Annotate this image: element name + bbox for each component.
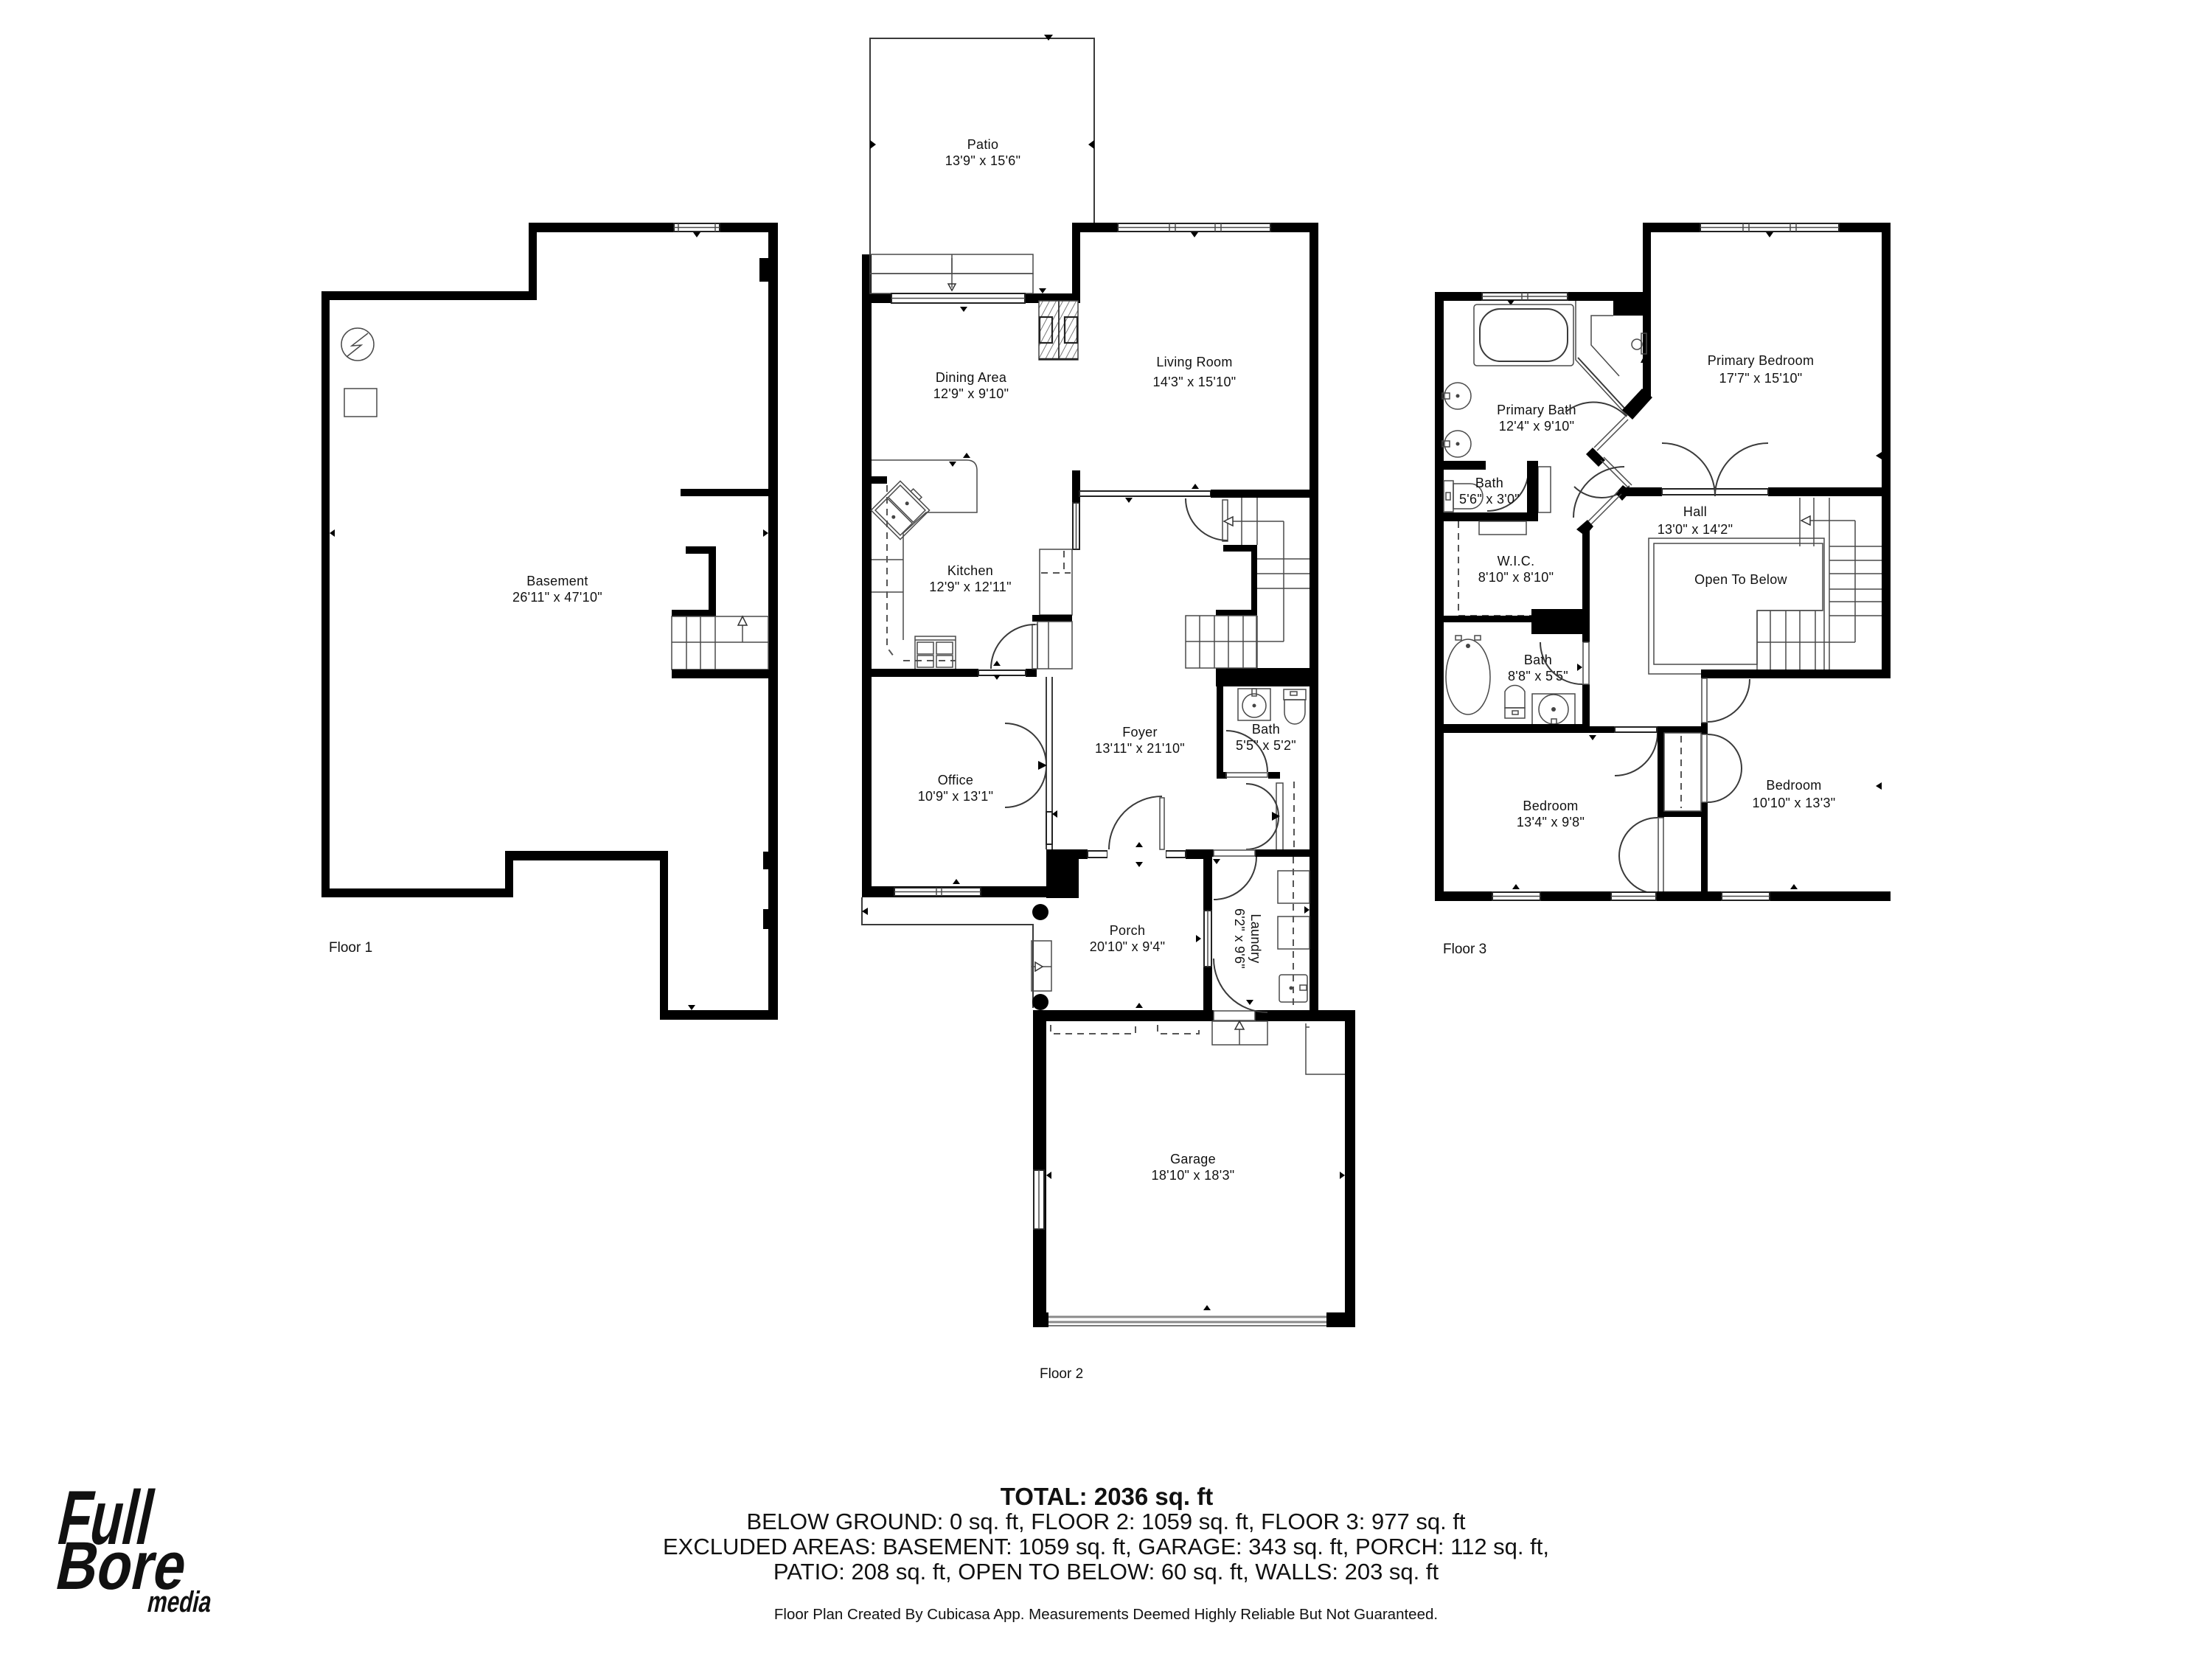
svg-text:Floor 3: Floor 3 bbox=[1443, 942, 1486, 957]
svg-text:20'10" x 9'4": 20'10" x 9'4" bbox=[1090, 939, 1166, 954]
svg-text:5'5" x 5'2": 5'5" x 5'2" bbox=[1236, 738, 1296, 753]
svg-text:Foyer: Foyer bbox=[1122, 725, 1158, 740]
svg-text:TOTAL: 2036 sq. ft: TOTAL: 2036 sq. ft bbox=[1001, 1483, 1214, 1510]
svg-text:Laundry: Laundry bbox=[1248, 914, 1263, 963]
svg-text:12'9" x 9'10": 12'9" x 9'10" bbox=[933, 386, 1009, 401]
svg-text:Garage: Garage bbox=[1170, 1152, 1216, 1166]
svg-text:Kitchen: Kitchen bbox=[947, 563, 993, 578]
svg-text:13'9" x 15'6": 13'9" x 15'6" bbox=[945, 153, 1021, 168]
svg-text:10'9" x 13'1": 10'9" x 13'1" bbox=[918, 789, 994, 804]
svg-text:18'10" x 18'3": 18'10" x 18'3" bbox=[1152, 1168, 1235, 1183]
svg-text:PATIO: 208 sq. ft, OPEN TO BEL: PATIO: 208 sq. ft, OPEN TO BELOW: 60 sq.… bbox=[773, 1559, 1439, 1585]
svg-text:Living Room: Living Room bbox=[1156, 355, 1232, 369]
svg-text:W.I.C.: W.I.C. bbox=[1498, 554, 1535, 568]
svg-text:10'10" x 13'3": 10'10" x 13'3" bbox=[1753, 796, 1836, 810]
svg-text:Hall: Hall bbox=[1683, 504, 1707, 519]
svg-text:Bedroom: Bedroom bbox=[1766, 778, 1821, 793]
svg-text:Bath: Bath bbox=[1475, 476, 1503, 490]
svg-text:EXCLUDED AREAS: BASEMENT: 1059: EXCLUDED AREAS: BASEMENT: 1059 sq. ft, G… bbox=[663, 1534, 1549, 1559]
svg-text:Bath: Bath bbox=[1252, 722, 1280, 737]
svg-text:8'8" x 5'5": 8'8" x 5'5" bbox=[1508, 669, 1568, 684]
svg-text:BELOW GROUND: 0 sq. ft, FLOOR: BELOW GROUND: 0 sq. ft, FLOOR 2: 1059 sq… bbox=[746, 1509, 1465, 1534]
svg-text:media: media bbox=[145, 1585, 215, 1618]
svg-text:Open To Below: Open To Below bbox=[1694, 572, 1787, 587]
svg-text:12'9" x 12'11": 12'9" x 12'11" bbox=[929, 580, 1012, 594]
svg-text:8'10" x 8'10": 8'10" x 8'10" bbox=[1478, 570, 1554, 585]
svg-text:Patio: Patio bbox=[967, 137, 999, 152]
svg-text:13'11" x 21'10": 13'11" x 21'10" bbox=[1095, 741, 1185, 756]
svg-text:13'4" x 9'8": 13'4" x 9'8" bbox=[1517, 815, 1585, 829]
svg-text:5'6" x 3'0": 5'6" x 3'0" bbox=[1459, 492, 1520, 507]
svg-text:12'4" x 9'10": 12'4" x 9'10" bbox=[1499, 419, 1575, 434]
svg-text:6'2" x 9'6": 6'2" x 9'6" bbox=[1232, 908, 1247, 969]
svg-text:Bedroom: Bedroom bbox=[1523, 799, 1578, 813]
svg-text:Porch: Porch bbox=[1110, 923, 1146, 938]
svg-text:14'3" x 15'10": 14'3" x 15'10" bbox=[1153, 375, 1237, 389]
svg-text:Floor 1: Floor 1 bbox=[329, 940, 372, 956]
svg-text:Dining Area: Dining Area bbox=[936, 370, 1007, 385]
svg-text:Bath: Bath bbox=[1524, 653, 1552, 667]
svg-text:Primary Bedroom: Primary Bedroom bbox=[1708, 353, 1815, 368]
svg-text:17'7" x 15'10": 17'7" x 15'10" bbox=[1719, 371, 1803, 386]
svg-text:Floor 2: Floor 2 bbox=[1040, 1366, 1083, 1382]
svg-text:Office: Office bbox=[938, 773, 974, 787]
svg-text:13'0" x 14'2": 13'0" x 14'2" bbox=[1658, 522, 1733, 537]
svg-text:26'11" x 47'10": 26'11" x 47'10" bbox=[512, 590, 602, 605]
svg-text:Primary Bath: Primary Bath bbox=[1497, 403, 1576, 417]
svg-text:Floor Plan Created By Cubicasa: Floor Plan Created By Cubicasa App. Meas… bbox=[774, 1606, 1438, 1623]
svg-text:Basement: Basement bbox=[526, 574, 588, 588]
